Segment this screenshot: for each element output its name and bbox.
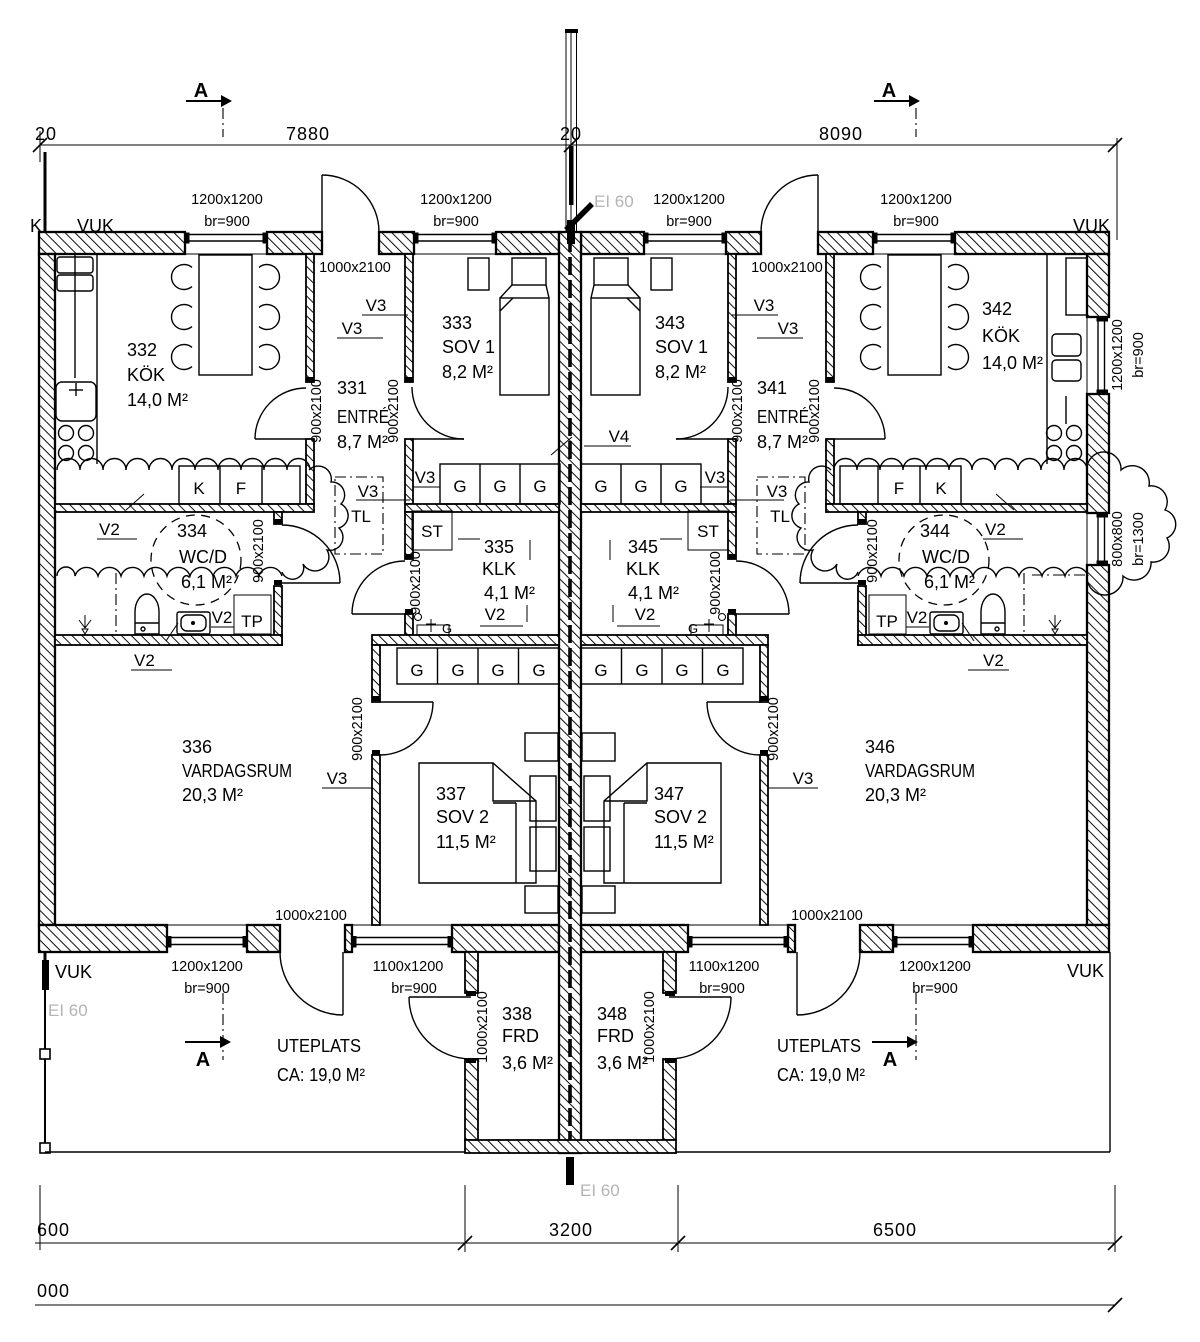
svg-text:600: 600 <box>37 1220 70 1240</box>
svg-text:G: G <box>453 477 466 496</box>
svg-text:SOV 2: SOV 2 <box>654 807 707 827</box>
svg-text:347: 347 <box>654 784 684 804</box>
svg-text:6,1 M²: 6,1 M² <box>924 572 975 592</box>
svg-text:WC/D: WC/D <box>179 547 227 567</box>
svg-text:331: 331 <box>337 378 367 398</box>
svg-text:G: G <box>594 661 607 680</box>
svg-text:G: G <box>675 661 688 680</box>
svg-text:14,0 M²: 14,0 M² <box>127 390 188 410</box>
svg-text:4,1 M²: 4,1 M² <box>628 583 679 603</box>
svg-text:000: 000 <box>37 1281 70 1301</box>
svg-text:8,7 M²: 8,7 M² <box>757 432 808 452</box>
svg-text:1200x1200: 1200x1200 <box>171 959 243 975</box>
svg-text:F: F <box>236 479 246 498</box>
svg-text:336: 336 <box>182 737 212 757</box>
svg-text:345: 345 <box>628 537 658 557</box>
svg-text:FRD: FRD <box>502 1026 539 1046</box>
svg-text:G: G <box>688 621 698 636</box>
svg-text:KLK: KLK <box>482 559 516 579</box>
svg-text:ENTRÉ: ENTRÉ <box>337 407 389 427</box>
svg-text:G: G <box>410 661 423 680</box>
svg-text:341: 341 <box>757 378 787 398</box>
svg-text:G: G <box>594 477 607 496</box>
svg-text:br=900: br=900 <box>699 981 745 997</box>
svg-text:V3: V3 <box>415 468 436 487</box>
svg-text:1200x1200: 1200x1200 <box>899 959 971 975</box>
svg-text:br=900: br=900 <box>666 214 712 230</box>
svg-text:11,5 M²: 11,5 M² <box>654 832 714 852</box>
svg-text:1200x1200: 1200x1200 <box>191 192 263 208</box>
svg-text:20,3 M²: 20,3 M² <box>182 785 243 805</box>
svg-text:SOV 1: SOV 1 <box>655 337 708 357</box>
svg-text:CA: 19,0 M²: CA: 19,0 M² <box>277 1065 365 1085</box>
svg-text:8,7 M²: 8,7 M² <box>337 432 388 452</box>
svg-text:900x2100: 900x2100 <box>865 519 881 583</box>
svg-text:20: 20 <box>35 124 57 144</box>
svg-text:CA: 19,0 M²: CA: 19,0 M² <box>777 1065 865 1085</box>
svg-text:1000x2100: 1000x2100 <box>642 991 658 1063</box>
svg-text:V3: V3 <box>358 482 379 501</box>
svg-text:br=900: br=900 <box>1131 332 1147 378</box>
svg-text:EI 60: EI 60 <box>594 192 634 211</box>
svg-text:A: A <box>196 1049 210 1071</box>
svg-text:UTEPLATS: UTEPLATS <box>277 1036 361 1056</box>
svg-text:G: G <box>635 661 648 680</box>
svg-text:G: G <box>491 661 504 680</box>
svg-text:A: A <box>883 1049 897 1071</box>
svg-text:ST: ST <box>421 522 443 541</box>
svg-text:G: G <box>674 477 687 496</box>
svg-text:K: K <box>30 216 42 236</box>
svg-text:EI 60: EI 60 <box>48 1001 88 1020</box>
svg-text:G: G <box>442 621 452 636</box>
svg-text:V3: V3 <box>793 769 814 788</box>
svg-text:VUK: VUK <box>77 216 114 236</box>
svg-text:V4: V4 <box>609 427 630 446</box>
svg-text:ST: ST <box>697 522 719 541</box>
svg-text:8,2 M²: 8,2 M² <box>655 362 706 382</box>
svg-text:338: 338 <box>502 1004 532 1024</box>
svg-text:6,1 M²: 6,1 M² <box>181 572 232 592</box>
svg-text:900x2100: 900x2100 <box>309 379 325 443</box>
svg-text:TL: TL <box>351 507 371 526</box>
svg-text:900x2100: 900x2100 <box>251 519 267 583</box>
svg-text:V2: V2 <box>212 608 233 627</box>
svg-text:900x2100: 900x2100 <box>708 551 724 615</box>
svg-text:KÖK: KÖK <box>982 326 1020 346</box>
svg-text:G: G <box>493 477 506 496</box>
svg-text:br=900: br=900 <box>204 214 250 230</box>
svg-text:WC/D: WC/D <box>922 547 970 567</box>
svg-text:342: 342 <box>982 299 1012 319</box>
svg-text:900x2100: 900x2100 <box>807 379 823 443</box>
svg-text:334: 334 <box>177 521 207 541</box>
svg-text:TP: TP <box>241 612 263 631</box>
svg-text:333: 333 <box>442 313 472 333</box>
svg-text:900x2100: 900x2100 <box>408 551 424 615</box>
svg-text:332: 332 <box>127 340 157 360</box>
svg-text:V3: V3 <box>342 319 363 338</box>
svg-text:V3: V3 <box>778 319 799 338</box>
svg-text:337: 337 <box>436 784 466 804</box>
svg-text:1200x1200: 1200x1200 <box>1110 319 1126 391</box>
svg-text:3200: 3200 <box>549 1220 593 1240</box>
svg-text:V3: V3 <box>767 482 788 501</box>
svg-text:V2: V2 <box>635 605 656 624</box>
svg-text:1100x1200: 1100x1200 <box>689 959 760 975</box>
svg-text:344: 344 <box>920 521 950 541</box>
svg-text:EI 60: EI 60 <box>580 1181 620 1200</box>
svg-text:4,1 M²: 4,1 M² <box>484 583 535 603</box>
svg-text:1000x2100: 1000x2100 <box>275 908 347 924</box>
svg-text:UTEPLATS: UTEPLATS <box>777 1036 861 1056</box>
svg-text:8090: 8090 <box>819 124 863 144</box>
svg-text:3,6 M²: 3,6 M² <box>597 1053 648 1073</box>
svg-text:348: 348 <box>597 1004 627 1024</box>
svg-text:SOV 1: SOV 1 <box>442 337 495 357</box>
svg-text:1200x1200: 1200x1200 <box>653 192 725 208</box>
svg-text:FRD: FRD <box>597 1026 634 1046</box>
svg-text:V2: V2 <box>985 520 1006 539</box>
svg-text:V2: V2 <box>134 651 155 670</box>
svg-text:G: G <box>716 661 729 680</box>
svg-text:346: 346 <box>865 737 895 757</box>
svg-text:11,5 M²: 11,5 M² <box>436 832 496 852</box>
svg-text:1000x2100: 1000x2100 <box>319 260 391 276</box>
svg-text:br=900: br=900 <box>391 981 437 997</box>
svg-text:G: G <box>533 477 546 496</box>
svg-text:TL: TL <box>770 507 790 526</box>
svg-text:br=900: br=900 <box>912 981 958 997</box>
svg-text:VUK: VUK <box>1073 216 1110 236</box>
svg-text:V3: V3 <box>366 296 387 315</box>
svg-text:G: G <box>634 477 647 496</box>
svg-text:SOV 2: SOV 2 <box>436 807 489 827</box>
svg-text:VARDAGSRUM: VARDAGSRUM <box>865 761 975 781</box>
svg-text:ENTRÉ: ENTRÉ <box>757 407 809 427</box>
svg-text:800x800: 800x800 <box>1110 511 1126 567</box>
svg-text:343: 343 <box>655 313 685 333</box>
svg-text:1000x2100: 1000x2100 <box>751 260 823 276</box>
svg-text:335: 335 <box>484 537 514 557</box>
svg-text:900x2100: 900x2100 <box>350 697 366 761</box>
svg-text:6500: 6500 <box>873 1220 917 1240</box>
svg-text:V2: V2 <box>907 608 928 627</box>
svg-text:V2: V2 <box>99 520 120 539</box>
svg-text:V3: V3 <box>754 296 775 315</box>
svg-text:A: A <box>194 80 208 102</box>
svg-text:br=900: br=900 <box>893 214 939 230</box>
svg-text:1100x1200: 1100x1200 <box>373 959 444 975</box>
svg-text:14,0 M²: 14,0 M² <box>982 353 1043 373</box>
svg-text:1000x2100: 1000x2100 <box>475 991 491 1063</box>
svg-text:20,3 M²: 20,3 M² <box>865 785 926 805</box>
svg-text:A: A <box>882 80 896 102</box>
svg-text:G: G <box>532 661 545 680</box>
svg-text:KLK: KLK <box>626 559 660 579</box>
svg-text:1200x1200: 1200x1200 <box>880 192 952 208</box>
svg-text:KÖK: KÖK <box>127 365 165 385</box>
svg-text:900x2100: 900x2100 <box>730 379 746 443</box>
svg-text:TP: TP <box>876 612 898 631</box>
svg-text:G: G <box>451 661 464 680</box>
svg-text:3,6 M²: 3,6 M² <box>502 1053 553 1073</box>
svg-text:br=900: br=900 <box>433 214 479 230</box>
svg-text:8,2 M²: 8,2 M² <box>442 362 493 382</box>
svg-text:900x2100: 900x2100 <box>386 379 402 443</box>
svg-text:1000x2100: 1000x2100 <box>791 908 863 924</box>
svg-text:VUK: VUK <box>55 962 92 982</box>
svg-text:br=1300: br=1300 <box>1131 512 1147 566</box>
svg-text:1200x1200: 1200x1200 <box>420 192 492 208</box>
svg-text:br=900: br=900 <box>184 981 230 997</box>
svg-text:VARDAGSRUM: VARDAGSRUM <box>182 761 292 781</box>
svg-text:900x2100: 900x2100 <box>766 697 782 761</box>
svg-text:K: K <box>935 479 947 498</box>
svg-text:7880: 7880 <box>286 124 330 144</box>
svg-text:F: F <box>894 479 904 498</box>
svg-text:K: K <box>193 479 205 498</box>
svg-text:VUK: VUK <box>1067 961 1104 981</box>
svg-text:V2: V2 <box>983 651 1004 670</box>
svg-text:V2: V2 <box>485 605 506 624</box>
svg-text:V3: V3 <box>327 769 348 788</box>
svg-text:V3: V3 <box>705 468 726 487</box>
